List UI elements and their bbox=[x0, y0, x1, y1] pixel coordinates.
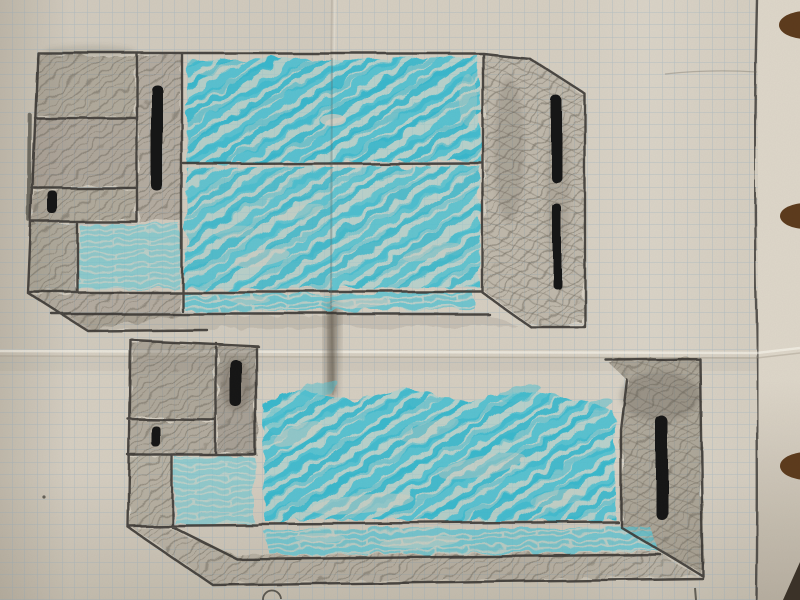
sketch-photo-canvas: Hand-drawn furniture sketches on squared… bbox=[0, 0, 800, 600]
photo-grain bbox=[0, 0, 800, 600]
photo-of-sketch: Hand-drawn furniture sketches on squared… bbox=[0, 0, 800, 600]
